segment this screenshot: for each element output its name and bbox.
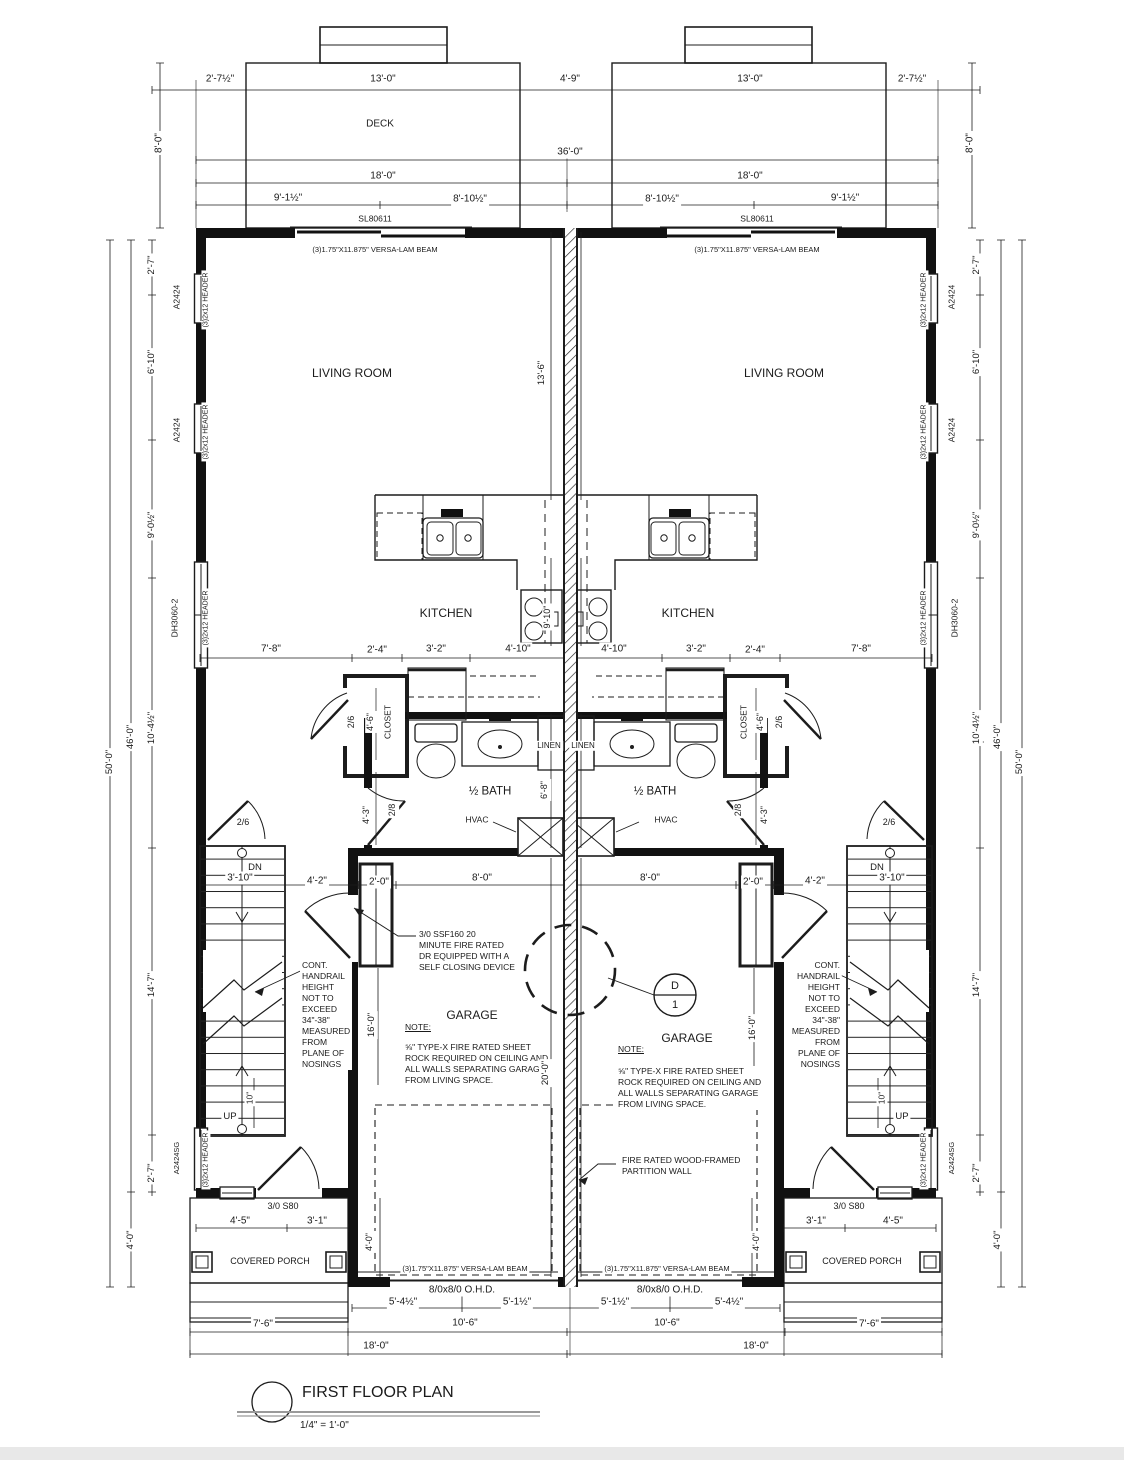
label-105: NOTE: <box>403 1022 433 1033</box>
label-19: 2'-7" <box>146 254 158 277</box>
label-0: 2'-7½" <box>204 73 236 86</box>
label-45: 10'-4½" <box>971 710 983 746</box>
room-label-closet-left: CLOSET <box>382 703 393 741</box>
label-98: 10" <box>244 1090 255 1106</box>
label-5: 8'-0" <box>153 131 166 155</box>
label-50: (3)2x12 HEADER <box>919 1131 928 1190</box>
room-label-living-right: LIVING ROOM <box>742 366 826 382</box>
label-68: 4'-6" <box>365 711 377 733</box>
label-33: (3)2x12 HEADER <box>201 1131 210 1190</box>
label-16: SL80611 <box>738 213 775 224</box>
label-90: 2'-0" <box>367 876 391 889</box>
label-135: 10'-6" <box>652 1317 681 1330</box>
label-130: 5'-1½" <box>501 1296 533 1309</box>
label-136: 7'-6" <box>857 1318 881 1331</box>
label-80: 4'-3" <box>759 804 771 826</box>
label-15: SL80611 <box>356 213 393 224</box>
room-label-bath-right: ½ BATH <box>632 785 679 800</box>
room-label-garage-right: GARAGE <box>659 1031 714 1047</box>
detail-callout-letter: D <box>669 979 681 993</box>
label-119: 3'-1" <box>804 1215 828 1228</box>
label-83: HVAC <box>653 814 680 825</box>
label-13: 8'-10½" <box>643 193 681 206</box>
label-116: 3/0 S80 <box>831 1201 866 1213</box>
label-129: 5'-4½" <box>387 1296 419 1309</box>
label-67: 2/6 <box>346 714 358 731</box>
room-label-linen-right: LINEN <box>569 741 597 751</box>
note-garage-left: ⅝" TYPE-X FIRE RATED SHEET ROCK REQUIRED… <box>403 1042 550 1086</box>
label-127: 8/0x8/0 O.H.D. <box>427 1284 497 1297</box>
label-84: 2/6 <box>235 817 252 829</box>
label-88: 3'-10" <box>225 872 254 885</box>
label-55: 13'-6" <box>536 359 548 387</box>
label-93: 2'-0" <box>741 876 765 889</box>
label-111: 20'-0" <box>540 1059 552 1087</box>
label-78: 4'-3" <box>361 804 373 826</box>
drawing-scale: 1/4" = 1'-0" <box>298 1419 351 1432</box>
label-65: 2'-4" <box>743 644 767 657</box>
label-82: HVAC <box>464 814 491 825</box>
label-62: 4'-10" <box>503 643 532 656</box>
room-label-deck: DECK <box>364 118 396 131</box>
room-label-living-left: LIVING ROOM <box>310 366 394 382</box>
floor-plan-page: 2'-7½"13'-0"4'-9"13'-0"2'-7½"8'-0"8'-0"D… <box>0 0 1124 1460</box>
label-115: 3/0 S80 <box>265 1201 300 1213</box>
label-6: 8'-0" <box>964 131 977 155</box>
label-27: (3)2x12 HEADER <box>201 589 210 648</box>
label-30: 50'-0" <box>104 748 116 776</box>
label-31: 14'-7" <box>146 971 158 999</box>
label-20: A2424 <box>171 283 182 312</box>
label-91: 8'-0" <box>470 872 494 885</box>
label-26: DH3060-2 <box>169 597 180 640</box>
room-label-garage-left: GARAGE <box>444 1008 499 1024</box>
label-70: 2/6 <box>774 714 786 731</box>
label-10: 18'-0" <box>735 170 764 183</box>
label-12: 8'-10½" <box>451 193 489 206</box>
note-fire-door: 3/0 SSF160 20 MINUTE FIRE RATED DR EQUIP… <box>417 929 517 973</box>
label-95: 3'-10" <box>877 872 906 885</box>
label-37: A2424 <box>946 283 957 312</box>
label-126: (3)1.75"X11.875" VERSA-LAM BEAM <box>602 1264 731 1274</box>
label-94: 4'-2" <box>803 875 827 888</box>
label-32: A2424SG <box>172 1140 182 1177</box>
label-125: (3)1.75"X11.875" VERSA-LAM BEAM <box>400 1264 529 1274</box>
label-77: 6'-8" <box>539 779 551 801</box>
label-28: 10'-4½" <box>146 710 158 746</box>
label-132: 5'-4½" <box>713 1296 745 1309</box>
label-63: 4'-10" <box>599 643 628 656</box>
label-137: 18'-0" <box>361 1340 390 1353</box>
label-23: A2424 <box>171 416 182 445</box>
room-label-kitchen-right: KITCHEN <box>660 606 717 622</box>
label-59: 7'-8" <box>259 643 283 656</box>
label-49: A2424SG <box>947 1140 957 1177</box>
label-61: 3'-2" <box>424 643 448 656</box>
label-128: 8/0x8/0 O.H.D. <box>635 1284 705 1297</box>
note-handrail-right: CONT. HANDRAIL HEIGHT NOT TO EXCEED 34"-… <box>790 960 842 1070</box>
label-22: 6'-10" <box>146 348 158 376</box>
label-9: 18'-0" <box>368 170 397 183</box>
note-garage-right: ⅝" TYPE-X FIRE RATED SHEET ROCK REQUIRED… <box>616 1066 763 1110</box>
label-36: 2'-7" <box>971 254 983 277</box>
label-110: 16'-0" <box>747 1014 759 1042</box>
label-85: 2/6 <box>881 817 898 829</box>
label-18: (3)1.75"X11.875" VERSA-LAM BEAM <box>692 245 821 255</box>
label-14: 9'-1½" <box>829 192 861 205</box>
label-81: 2/8 <box>733 802 745 819</box>
label-25: 9'-0½" <box>146 510 158 541</box>
label-39: 6'-10" <box>971 348 983 376</box>
label-24: (3)2x12 HEADER <box>201 403 210 462</box>
label-3: 13'-0" <box>735 73 764 86</box>
label-58: 9'-10" <box>542 604 554 631</box>
label-134: 10'-6" <box>450 1317 479 1330</box>
label-106: NOTE: <box>616 1044 646 1055</box>
labels-layer: 2'-7½"13'-0"4'-9"13'-0"2'-7½"8'-0"8'-0"D… <box>0 0 1124 1460</box>
note-handrail-left: CONT. HANDRAIL HEIGHT NOT TO EXCEED 34"-… <box>300 960 352 1070</box>
room-label-porch-left: COVERED PORCH <box>228 1256 312 1268</box>
label-11: 9'-1½" <box>272 192 304 205</box>
label-97: UP <box>893 1111 910 1123</box>
label-40: A2424 <box>946 416 957 445</box>
label-29: 46'-0" <box>125 723 137 751</box>
label-92: 8'-0" <box>638 872 662 885</box>
label-118: 3'-1" <box>305 1215 329 1228</box>
label-79: 2/8 <box>387 802 399 819</box>
room-label-linen-left: LINEN <box>535 741 563 751</box>
label-138: 18'-0" <box>741 1340 770 1353</box>
label-51: 2'-7" <box>971 1162 983 1185</box>
drawing-title: FIRST FLOOR PLAN <box>300 1383 456 1404</box>
page-edge-band <box>0 1447 1124 1460</box>
label-47: 50'-0" <box>1014 748 1026 776</box>
label-1: 13'-0" <box>368 73 397 86</box>
label-48: 14'-7" <box>971 971 983 999</box>
label-123: 4'-0" <box>364 1231 376 1253</box>
label-71: 4'-6" <box>755 711 767 733</box>
room-label-closet-right: CLOSET <box>738 703 749 741</box>
label-17: (3)1.75"X11.875" VERSA-LAM BEAM <box>310 245 439 255</box>
detail-callout-number: 1 <box>670 998 680 1012</box>
room-label-kitchen-left: KITCHEN <box>418 606 475 622</box>
label-60: 2'-4" <box>365 644 389 657</box>
label-52: 4'-0" <box>992 1229 1004 1252</box>
label-89: 4'-2" <box>305 875 329 888</box>
room-label-bath-left: ½ BATH <box>467 785 514 800</box>
label-35: 4'-0" <box>125 1229 137 1252</box>
label-131: 5'-1½" <box>599 1296 631 1309</box>
label-124: 4'-0" <box>751 1231 763 1253</box>
label-38: (3)2x12 HEADER <box>919 271 928 330</box>
label-4: 2'-7½" <box>896 73 928 86</box>
label-44: (3)2x12 HEADER <box>919 589 928 648</box>
label-109: 16'-0" <box>366 1011 378 1039</box>
label-43: DH3060-2 <box>949 597 960 640</box>
label-34: 2'-7" <box>146 1162 158 1185</box>
label-2: 4'-9" <box>558 73 582 86</box>
note-partition-wall: FIRE RATED WOOD-FRAMED PARTITION WALL <box>620 1155 742 1177</box>
label-96: UP <box>221 1111 238 1123</box>
label-117: 4'-5" <box>228 1215 252 1228</box>
label-133: 7'-6" <box>251 1318 275 1331</box>
room-label-porch-right: COVERED PORCH <box>820 1256 904 1268</box>
label-21: (3)2x12 HEADER <box>201 271 210 330</box>
label-64: 3'-2" <box>684 643 708 656</box>
label-46: 46'-0" <box>992 723 1004 751</box>
label-66: 7'-8" <box>849 643 873 656</box>
label-8: 36'-0" <box>555 146 584 159</box>
label-41: (3)2x12 HEADER <box>919 403 928 462</box>
label-99: 10" <box>876 1090 887 1106</box>
label-120: 4'-5" <box>881 1215 905 1228</box>
label-42: 9'-0½" <box>971 510 983 541</box>
